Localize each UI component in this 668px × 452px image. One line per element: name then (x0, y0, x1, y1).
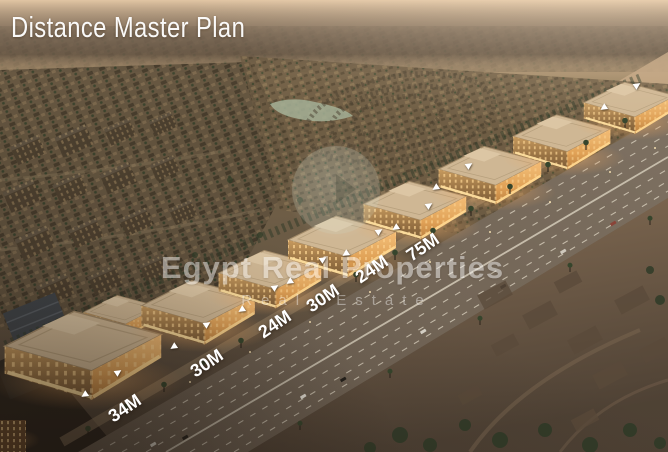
master-plan-render: Distance Master Plan Egypt Real Properti… (0, 0, 668, 452)
page-title: Distance Master Plan (11, 12, 245, 45)
watermark-logo-icon (292, 146, 380, 234)
